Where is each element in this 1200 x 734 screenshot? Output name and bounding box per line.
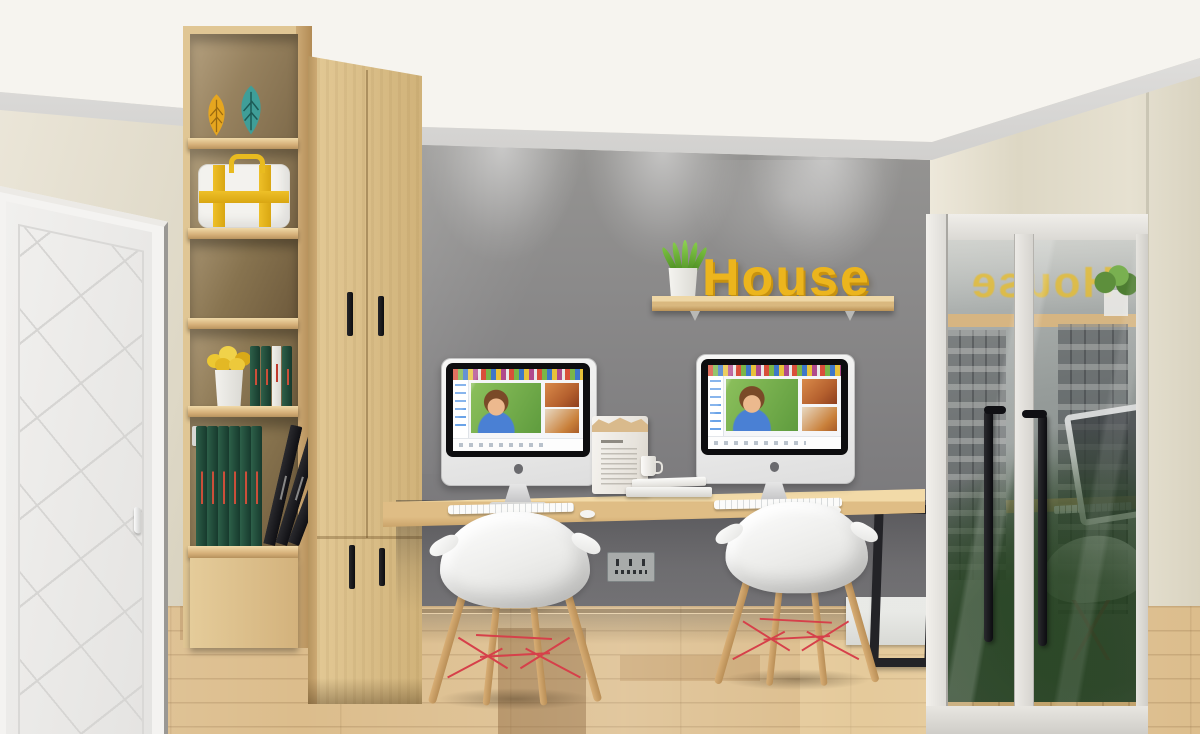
shelf-board bbox=[188, 546, 298, 558]
wardrobe-handle bbox=[378, 296, 384, 336]
wardrobe-handle bbox=[347, 292, 353, 336]
shelf-board bbox=[188, 406, 298, 417]
glass-door-handle-left-hook bbox=[984, 406, 1006, 414]
chair-left bbox=[430, 512, 600, 712]
wardrobe-bottom-shadow bbox=[308, 678, 422, 704]
chair-shell bbox=[726, 502, 869, 593]
wall-shelf-board bbox=[652, 296, 894, 311]
bookshelf-base-cabinet bbox=[190, 558, 298, 648]
white-book-stack bbox=[626, 476, 712, 498]
apple-logo bbox=[514, 464, 523, 474]
door-frame-left-stile bbox=[926, 214, 948, 734]
computer-right bbox=[696, 354, 853, 514]
chair-wire bbox=[732, 631, 785, 660]
chair-wire bbox=[742, 621, 790, 652]
glass-double-door: House bbox=[926, 214, 1148, 734]
book-white bbox=[272, 346, 281, 406]
flower bbox=[229, 358, 245, 372]
book bbox=[250, 346, 260, 406]
glass-door-handle-right-hook bbox=[1022, 410, 1047, 418]
cup-handle bbox=[654, 461, 663, 474]
flower-pot bbox=[213, 370, 245, 406]
apple-logo bbox=[770, 462, 779, 472]
outlet-slot bbox=[642, 559, 645, 566]
outlet-dots bbox=[615, 570, 647, 574]
shelf-board bbox=[188, 138, 298, 149]
chair-wire bbox=[447, 648, 503, 679]
book bbox=[282, 346, 292, 406]
computer-left bbox=[441, 358, 595, 516]
suitcase bbox=[198, 164, 290, 228]
chair-leg bbox=[562, 587, 602, 703]
chair-wire bbox=[458, 637, 508, 669]
door-frame-bottom-rail bbox=[926, 706, 1148, 734]
leaf-ornament-yellow bbox=[203, 92, 230, 138]
book bbox=[218, 426, 229, 546]
door-frame-mullion bbox=[1014, 234, 1034, 734]
bag-label-title bbox=[601, 440, 623, 443]
door-handle bbox=[134, 506, 141, 533]
door-frame-top-rail bbox=[926, 214, 1148, 240]
screen-glare bbox=[453, 369, 583, 451]
suitcase-band bbox=[199, 191, 289, 203]
entry-door bbox=[0, 186, 164, 734]
leaf-ornament-teal bbox=[235, 82, 267, 138]
house-sign: House bbox=[702, 248, 871, 302]
monitor-stand bbox=[504, 484, 532, 504]
plant-pot bbox=[667, 268, 699, 296]
bag-fold-top bbox=[592, 416, 648, 432]
outlet-slot bbox=[629, 559, 632, 566]
wardrobe-handle bbox=[349, 545, 355, 589]
book bbox=[196, 426, 207, 546]
power-outlet bbox=[607, 552, 655, 582]
book bbox=[207, 426, 218, 546]
wardrobe-side-edge bbox=[308, 50, 317, 704]
scene: House bbox=[0, 0, 1200, 734]
chair-shell bbox=[440, 512, 590, 608]
chair-shadow bbox=[724, 669, 870, 690]
chair-shadow bbox=[438, 688, 592, 710]
shelf-compartment bbox=[190, 239, 298, 318]
chair-leg bbox=[842, 573, 880, 683]
chair-wire bbox=[760, 618, 832, 624]
wardrobe-handle bbox=[379, 548, 385, 586]
white-book bbox=[626, 487, 712, 497]
book bbox=[240, 426, 251, 546]
door-lattice-panel bbox=[18, 224, 144, 734]
chair-wire bbox=[476, 634, 552, 640]
glass-door-handle-left bbox=[984, 410, 993, 642]
book bbox=[251, 426, 262, 546]
screen-glare bbox=[708, 365, 841, 449]
door-frame-right-stile bbox=[1136, 234, 1148, 734]
shelf-board bbox=[188, 228, 298, 239]
outlet-slot bbox=[616, 559, 619, 566]
bookshelf bbox=[183, 26, 312, 648]
suitcase-handle bbox=[229, 154, 265, 173]
glass-door-handle-right bbox=[1038, 414, 1047, 646]
chair-right bbox=[716, 502, 878, 692]
screen bbox=[453, 369, 583, 451]
wardrobe-door-seam bbox=[366, 70, 368, 538]
shelf-board bbox=[188, 318, 298, 329]
book bbox=[229, 426, 240, 546]
book bbox=[261, 346, 271, 406]
screen bbox=[708, 365, 841, 449]
